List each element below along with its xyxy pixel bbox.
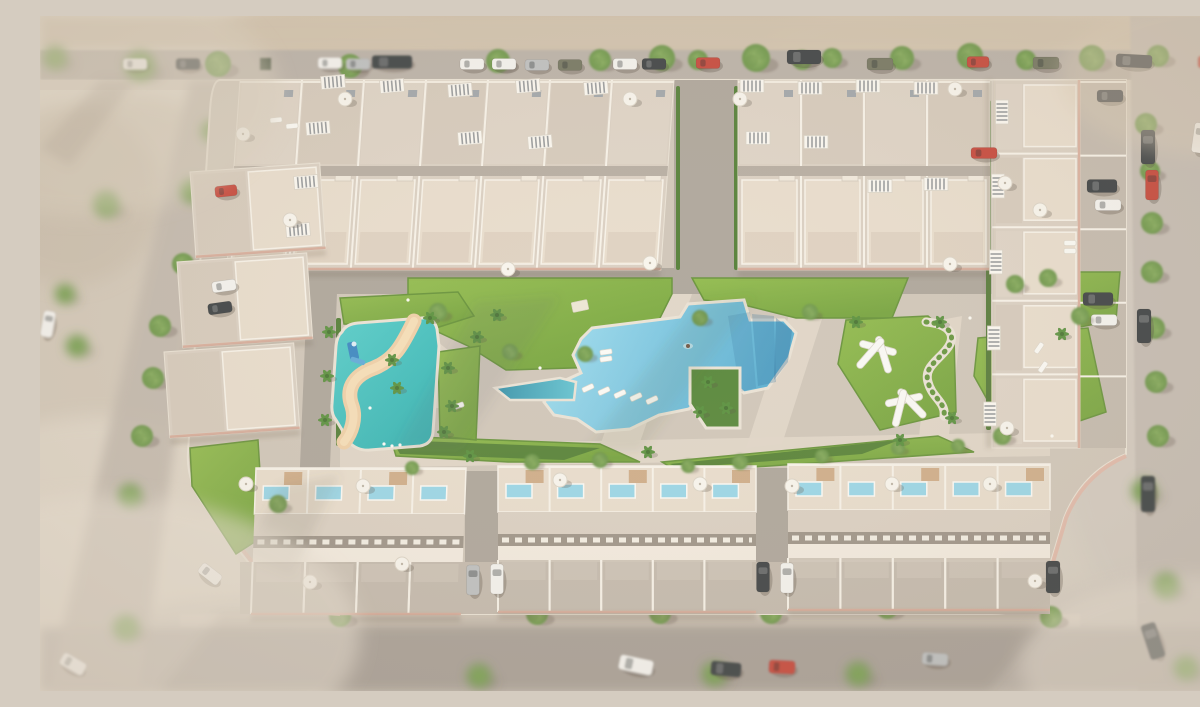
scene-svg xyxy=(40,16,1200,691)
lighting-layer xyxy=(40,16,1200,691)
warm-light-overlay xyxy=(40,16,1200,691)
aerial-render-residential-complex xyxy=(40,16,1200,691)
